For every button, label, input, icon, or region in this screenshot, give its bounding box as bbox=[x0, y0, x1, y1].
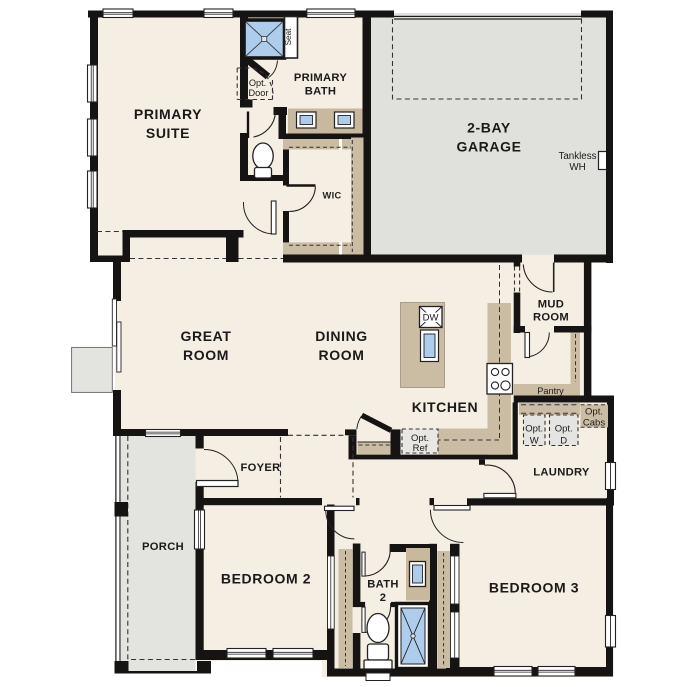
svg-text:FOYER: FOYER bbox=[240, 462, 280, 474]
svg-text:W: W bbox=[530, 436, 539, 447]
svg-text:WH: WH bbox=[569, 162, 585, 173]
svg-text:Cabs: Cabs bbox=[583, 418, 605, 429]
svg-text:Opt.: Opt. bbox=[249, 78, 266, 88]
svg-text:Ref: Ref bbox=[413, 443, 428, 454]
svg-text:ROOM: ROOM bbox=[183, 347, 229, 363]
svg-text:Pantry: Pantry bbox=[537, 386, 564, 396]
svg-text:Tankless: Tankless bbox=[558, 151, 596, 162]
svg-text:BATH: BATH bbox=[367, 578, 398, 590]
svg-text:PORCH: PORCH bbox=[142, 541, 184, 553]
svg-text:GREAT: GREAT bbox=[181, 328, 232, 344]
svg-text:Opt.: Opt. bbox=[585, 407, 603, 418]
svg-text:SUITE: SUITE bbox=[146, 125, 190, 141]
svg-text:2-BAY: 2-BAY bbox=[467, 120, 511, 136]
svg-text:GARAGE: GARAGE bbox=[456, 139, 521, 155]
svg-text:PRIMARY: PRIMARY bbox=[294, 72, 348, 84]
svg-text:Opt.: Opt. bbox=[555, 424, 573, 435]
svg-text:MUD: MUD bbox=[538, 299, 564, 311]
svg-text:WIC: WIC bbox=[323, 191, 342, 201]
svg-text:ROOM: ROOM bbox=[533, 312, 569, 324]
svg-text:ROOM: ROOM bbox=[319, 347, 365, 363]
svg-text:BATH: BATH bbox=[305, 86, 336, 98]
svg-text:D: D bbox=[560, 436, 567, 447]
svg-text:Opt.: Opt. bbox=[525, 424, 543, 435]
svg-text:BEDROOM 2: BEDROOM 2 bbox=[221, 570, 311, 586]
svg-text:BEDROOM 3: BEDROOM 3 bbox=[489, 579, 579, 595]
svg-text:Seat: Seat bbox=[284, 28, 293, 46]
svg-text:DW: DW bbox=[423, 313, 439, 324]
svg-text:PRIMARY: PRIMARY bbox=[134, 106, 202, 122]
svg-text:Door: Door bbox=[249, 88, 269, 98]
svg-text:LAUNDRY: LAUNDRY bbox=[533, 467, 590, 479]
svg-text:2: 2 bbox=[380, 592, 387, 604]
svg-text:DINING: DINING bbox=[315, 328, 368, 344]
svg-text:KITCHEN: KITCHEN bbox=[412, 399, 478, 415]
